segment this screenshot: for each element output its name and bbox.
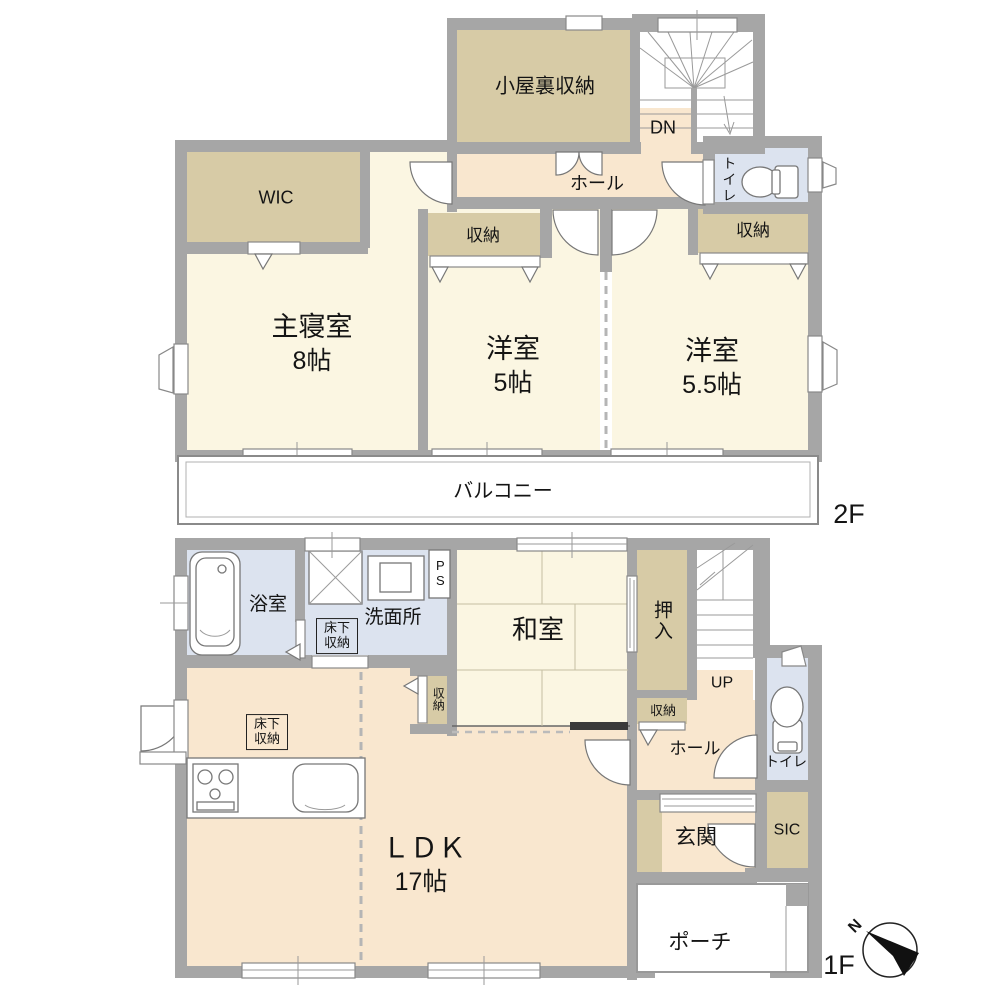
label-underfloor-kitchen: 床下収納 [246,714,288,750]
label-wic: WIC [259,189,294,208]
label-balcony: バルコニー [453,482,553,503]
washer-pan-fixture [309,551,362,604]
label-floor-1f: 1F [823,951,855,979]
toilet-fixture-2f [742,166,798,198]
label-master-name: 主寝室 [272,313,353,341]
floorplan-page: 小屋裏収納 DN ホール トイレ WIC 主寝室 8帖 収納 洋室 5帖 収納 … [0,0,1000,1000]
label-floor-2f: 2F [833,500,865,528]
door-toilet-2f-opening [703,160,714,204]
label-western5-size: 5帖 [494,370,533,396]
label-western5-name: 洋室 [486,335,540,363]
bathtub-fixture [190,552,240,655]
compass [863,923,919,977]
kitchen-fixture [187,758,365,818]
genkan-shoe-cabinet [637,792,662,874]
washroom-sink-fixture [368,556,424,600]
label-ldk-name: ＬＤＫ [382,833,466,862]
label-washitsu: 和室 [512,616,564,643]
label-toilet-2f: トイレ [722,156,737,204]
stairs-2f-divider [691,88,697,142]
label-closet-w55: 収納 [736,222,770,240]
label-ps: PS [433,558,447,588]
label-underfloor-washroom: 床下収納 [316,618,358,654]
label-closet-hall: 収納 [650,704,676,718]
label-oshiire: 押入 [651,600,671,642]
toilet-fixture-1f [771,687,803,753]
label-closet-west: 収納 [432,687,445,711]
door-washroom-opening [312,656,368,668]
label-washroom: 洗面所 [364,608,421,628]
label-master-size: 8帖 [293,348,332,374]
label-bath: 浴室 [249,595,287,615]
label-attic: 小屋裏収納 [495,77,595,98]
label-hall-2f: ホール [570,175,624,194]
label-dn: DN [650,119,676,138]
porch [637,884,808,972]
label-ldk-size: 17帖 [395,869,448,895]
label-western55-size: 5.5帖 [682,372,742,398]
label-western55-name: 洋室 [685,337,739,365]
label-closet-w5: 収納 [466,227,500,245]
label-hall-1f: ホール [670,740,721,758]
label-sic: SIC [774,823,801,840]
label-genkan: 玄関 [675,827,717,849]
washitsu-sliding-closed [570,722,628,730]
label-porch: ポーチ [669,932,732,954]
label-up: UP [711,676,733,693]
label-toilet-1f: トイレ [765,755,807,770]
